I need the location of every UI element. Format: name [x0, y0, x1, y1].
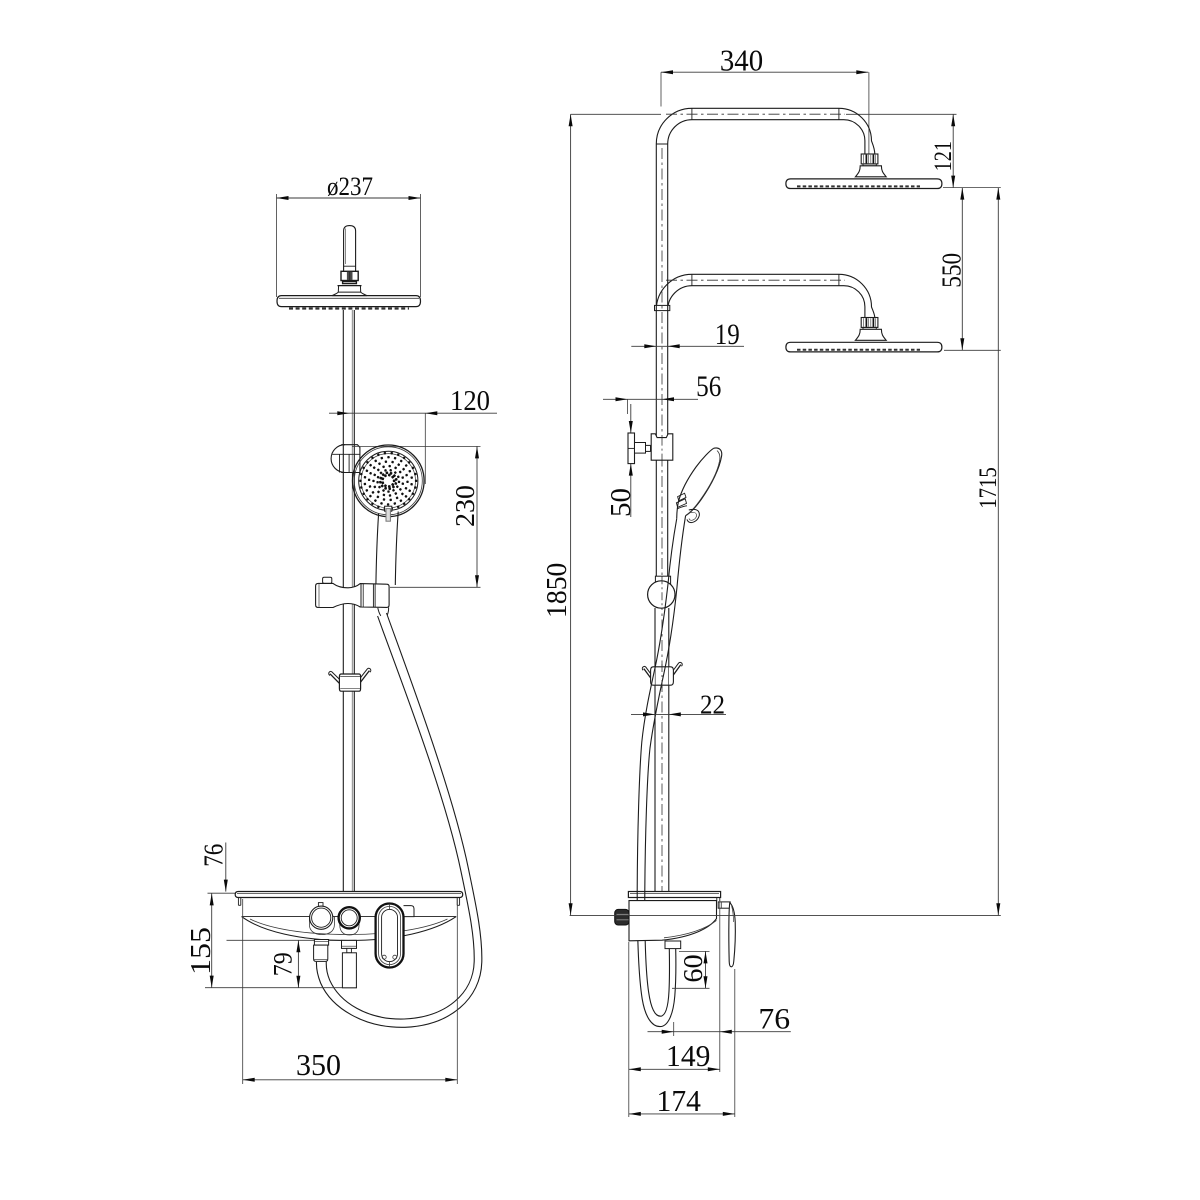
svg-text:174: 174: [657, 1083, 702, 1118]
svg-text:19: 19: [715, 318, 740, 351]
svg-text:350: 350: [296, 1047, 341, 1082]
svg-text:60: 60: [678, 954, 708, 982]
svg-text:ø237: ø237: [327, 172, 373, 201]
svg-text:1715: 1715: [975, 467, 1002, 509]
svg-text:120: 120: [450, 385, 490, 417]
svg-text:76: 76: [198, 844, 228, 867]
svg-text:149: 149: [666, 1038, 710, 1073]
svg-text:550: 550: [937, 253, 967, 288]
svg-text:50: 50: [606, 488, 637, 517]
svg-text:230: 230: [450, 485, 480, 527]
svg-text:1850: 1850: [541, 563, 573, 618]
svg-text:79: 79: [269, 952, 298, 976]
svg-text:76: 76: [758, 1002, 790, 1035]
svg-text:22: 22: [700, 690, 725, 720]
svg-text:155: 155: [186, 927, 217, 975]
svg-text:121: 121: [930, 141, 957, 171]
svg-text:56: 56: [696, 370, 721, 403]
